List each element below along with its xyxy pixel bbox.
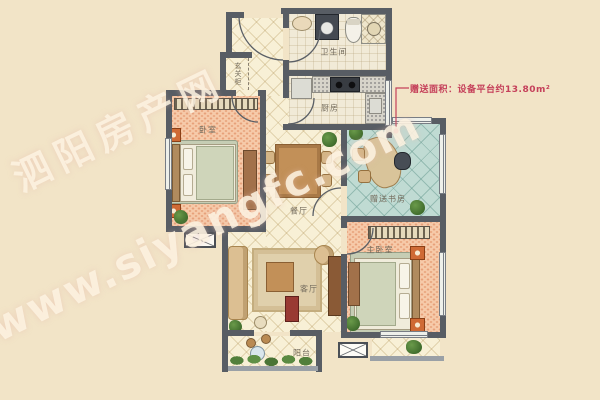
- plant-icon: [406, 340, 422, 354]
- washing-machine: [315, 14, 339, 40]
- master-nightstand: [410, 246, 425, 260]
- master-cabinet: [348, 262, 360, 306]
- shaft-x-icon: [184, 232, 216, 248]
- room-label-living: 客厅: [300, 284, 318, 295]
- wall: [341, 254, 347, 332]
- room-label-foyer: 玄关柜: [233, 62, 243, 86]
- wall: [281, 8, 392, 14]
- toilet: [345, 17, 362, 43]
- balcony-rail: [228, 366, 318, 371]
- stove: [330, 77, 360, 92]
- window: [392, 117, 432, 124]
- refrigerator: [291, 78, 312, 99]
- floor-plan-canvas: 卧室 卫生间 厨房 餐厅 赠送书房 客厅 主卧室 阳台 玄关柜 赠送面积：设备平…: [0, 0, 600, 400]
- office-chair: [394, 152, 411, 170]
- tv-cabinet: [328, 256, 342, 316]
- window: [439, 252, 446, 316]
- bedroom-bed-headboard: [172, 144, 180, 202]
- wall: [228, 330, 254, 336]
- shaft-x-icon: [338, 342, 368, 358]
- wall: [220, 52, 252, 58]
- dining-table: [275, 144, 321, 198]
- platform-rail: [370, 356, 444, 361]
- bedroom-dresser: [243, 150, 257, 210]
- room-label-dining: 餐厅: [290, 206, 308, 217]
- plant-icon: [346, 316, 360, 331]
- master-pillow: [399, 263, 410, 289]
- guest-chair: [358, 170, 371, 183]
- balcony-stool: [261, 334, 271, 344]
- wall: [166, 226, 266, 232]
- plant-icon: [410, 200, 425, 215]
- plant-icon: [322, 132, 337, 147]
- master-blanket: [356, 262, 396, 326]
- bedroom-wardrobe: [174, 98, 258, 110]
- dining-chair: [321, 174, 332, 187]
- gift-area-annotation: 赠送面积：设备平台约13.80m²: [410, 82, 550, 95]
- room-label-study: 赠送书房: [370, 194, 406, 205]
- room-label-balcony: 阳台: [293, 348, 311, 359]
- bedroom-pillow: [183, 148, 193, 170]
- master-wardrobe: [368, 226, 430, 239]
- shower-area: [361, 14, 386, 44]
- floor-lamp: [254, 316, 267, 329]
- wall: [289, 70, 386, 76]
- wall: [260, 96, 266, 232]
- bathroom-sink: [292, 16, 312, 31]
- bedroom-pillow: [183, 174, 193, 196]
- wall: [166, 90, 236, 96]
- kitchen-sink: [369, 98, 382, 114]
- guest-chair: [352, 148, 365, 161]
- window: [165, 138, 172, 190]
- wall: [283, 60, 289, 98]
- window: [385, 80, 392, 126]
- window: [439, 134, 446, 194]
- room-label-bathroom: 卫生间: [321, 47, 348, 58]
- room-label-bedroom: 卧室: [199, 125, 217, 136]
- wall: [283, 14, 289, 28]
- dining-chair: [321, 151, 332, 164]
- sofa: [228, 246, 248, 320]
- side-bench: [285, 296, 299, 322]
- window: [380, 331, 428, 338]
- bedroom-blanket: [196, 146, 234, 200]
- wall: [222, 226, 228, 372]
- coffee-table: [266, 262, 294, 292]
- wall: [341, 124, 347, 186]
- master-nightstand: [410, 318, 425, 332]
- room-label-master: 主卧室: [367, 245, 394, 256]
- wall: [283, 124, 392, 130]
- plant-icon: [174, 210, 188, 224]
- room-label-kitchen: 厨房: [321, 103, 339, 114]
- master-pillow: [399, 293, 410, 319]
- wall: [341, 216, 446, 222]
- wall: [341, 222, 347, 228]
